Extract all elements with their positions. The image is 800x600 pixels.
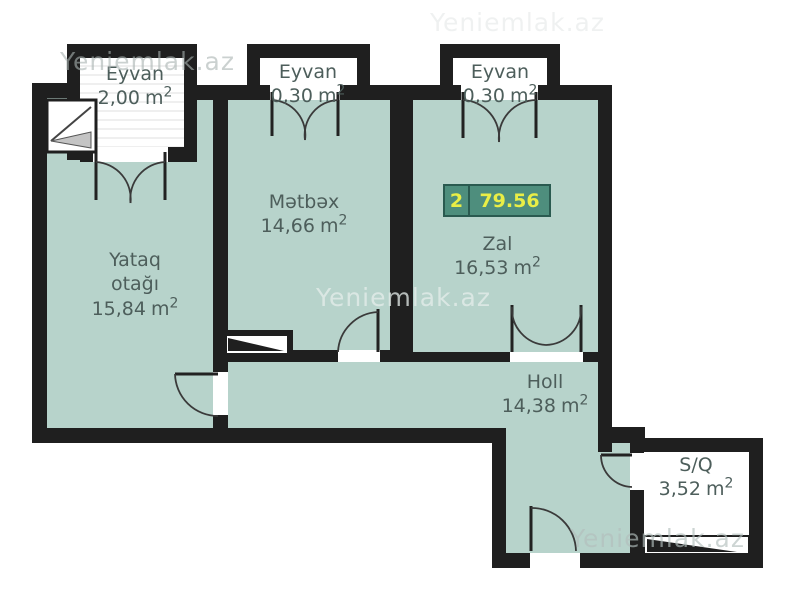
room-area: 0,30m2 xyxy=(430,84,570,108)
room-name: Zal xyxy=(415,232,580,256)
room-name: Eyvan xyxy=(65,62,205,86)
door-arc-icon xyxy=(338,312,378,352)
door-arc-icon xyxy=(546,307,581,345)
room-name: Mətbəx xyxy=(229,190,379,214)
room-area: 15,84m2 xyxy=(55,297,215,321)
room-area: 14,38m2 xyxy=(465,394,625,418)
total-area: 79.56 xyxy=(470,190,549,212)
room-area: 0,30m2 xyxy=(238,84,378,108)
door-arc-icon xyxy=(531,508,576,551)
door-arc-icon xyxy=(130,162,165,203)
door-arc-icon xyxy=(175,374,218,416)
room-label-sq: S/Q 3,52m2 xyxy=(626,453,766,502)
room-label-yataq: Yataq otağı 15,84m2 xyxy=(55,248,215,321)
room-area: 16,53m2 xyxy=(415,256,580,280)
door-arc-icon xyxy=(96,162,131,203)
room-label-eyvan-middle: Eyvan 0,30m2 xyxy=(238,60,378,109)
room-name: Holl xyxy=(465,370,625,394)
floor-plan: Eyvan 2,00m2 Eyvan 0,30m2 Eyvan 0,30m2 M… xyxy=(0,0,800,600)
door-arc-icon xyxy=(512,307,546,345)
room-area: 2,00m2 xyxy=(65,86,205,110)
room-name: Yataq xyxy=(55,248,215,272)
room-area: 3,52m2 xyxy=(626,477,766,501)
room-label-matbax: Mətbəx 14,66m2 xyxy=(229,190,379,239)
room-label-zal: Zal 16,53m2 xyxy=(415,232,580,281)
room-name: otağı xyxy=(55,272,215,296)
room-count: 2 xyxy=(445,186,470,215)
room-label-eyvan-right: Eyvan 0,30m2 xyxy=(430,60,570,109)
apartment-summary-badge: 2 79.56 xyxy=(443,184,551,217)
room-label-eyvan-left: Eyvan 2,00m2 xyxy=(65,62,205,111)
room-name: Eyvan xyxy=(430,60,570,84)
room-name: Eyvan xyxy=(238,60,378,84)
room-name: S/Q xyxy=(626,453,766,477)
room-label-holl: Holl 14,38m2 xyxy=(465,370,625,419)
room-area: 14,66m2 xyxy=(229,214,379,238)
